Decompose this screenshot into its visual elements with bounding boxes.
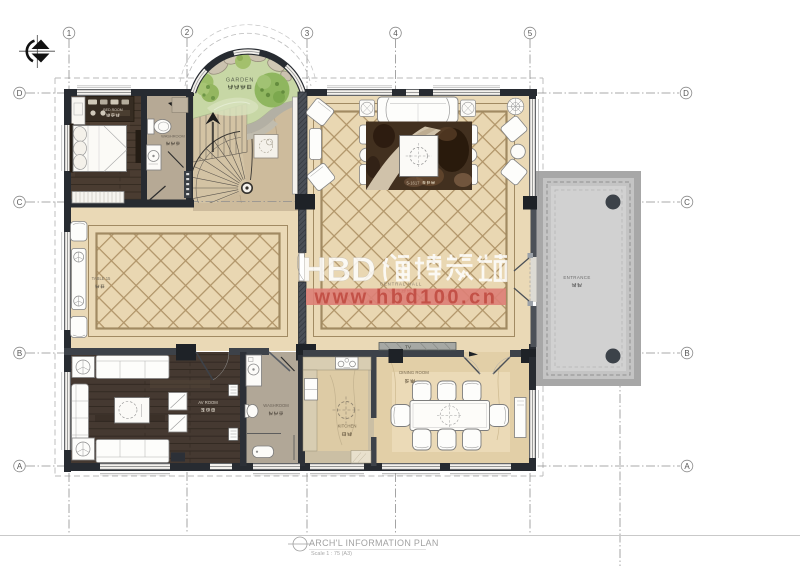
- svg-text:B: B: [684, 349, 689, 358]
- svg-text:5: 5: [528, 29, 533, 38]
- svg-text:A: A: [17, 462, 23, 471]
- svg-text:DINING ROOM: DINING ROOM: [399, 370, 429, 375]
- svg-text:1: 1: [67, 29, 72, 38]
- svg-text:www.hbd100.cn: www.hbd100.cn: [314, 287, 498, 309]
- svg-text:BED ROOM: BED ROOM: [103, 108, 123, 112]
- svg-text:WASHROOM: WASHROOM: [263, 403, 289, 408]
- svg-text:GARDEN: GARDEN: [226, 78, 254, 84]
- svg-text:3: 3: [305, 29, 310, 38]
- svg-text:TABLE 15: TABLE 15: [92, 276, 111, 281]
- svg-text:ENTRANCE: ENTRANCE: [563, 275, 590, 280]
- svg-text:KITCHEN: KITCHEN: [338, 424, 357, 429]
- svg-text:2: 2: [185, 28, 190, 37]
- svg-text:AV ROOM: AV ROOM: [198, 400, 218, 405]
- svg-text:4: 4: [393, 29, 398, 38]
- svg-text:C: C: [17, 198, 23, 207]
- svg-text:ARCH'L INFORMATION PLAN: ARCH'L INFORMATION PLAN: [309, 538, 439, 548]
- svg-text:C: C: [684, 198, 690, 207]
- svg-text:A: A: [684, 462, 690, 471]
- svg-text:Scale 1 : 75 (A3): Scale 1 : 75 (A3): [311, 551, 352, 557]
- svg-text:D: D: [17, 89, 23, 98]
- svg-text:5-1617: 5-1617: [406, 181, 420, 186]
- svg-text:TV: TV: [405, 345, 412, 351]
- svg-text:B: B: [17, 349, 22, 358]
- svg-text:D: D: [683, 89, 689, 98]
- svg-text:WASHROOM: WASHROOM: [161, 134, 185, 139]
- svg-text:HBD: HBD: [302, 251, 376, 289]
